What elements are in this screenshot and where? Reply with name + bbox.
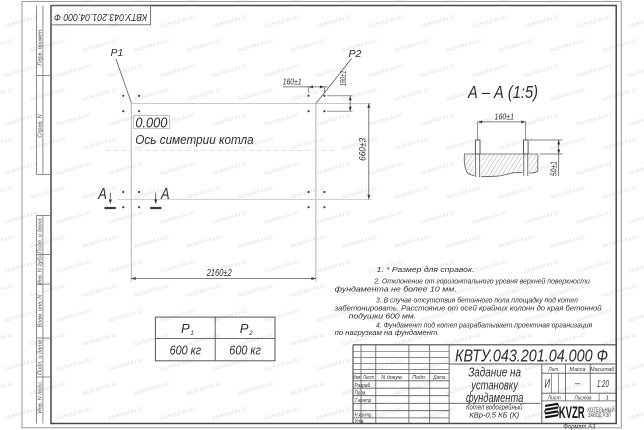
svg-text:Пров.: Пров. (355, 390, 367, 396)
svg-text:фундамента не более 10 мм.: фундамента не более 10 мм. (335, 284, 457, 293)
svg-text:660±3: 660±3 (357, 137, 368, 161)
svg-text:600 кг: 600 кг (170, 343, 202, 358)
svg-text:P2: P2 (349, 48, 362, 60)
svg-text:160±1: 160±1 (339, 71, 348, 87)
svg-text:ЗАВОД РЭП: ЗАВОД РЭП (588, 413, 611, 419)
svg-text:КВТУ.043.201.04.000 Ф: КВТУ.043.201.04.000 Ф (455, 346, 608, 366)
svg-text:P1: P1 (111, 47, 124, 59)
svg-text:Подп.: Подп. (412, 375, 426, 381)
svg-text:Инв. N подл.: Инв. N подл. (37, 381, 43, 414)
svg-text:Н.контр.: Н.контр. (355, 413, 373, 419)
svg-text:1: 1 (606, 396, 609, 402)
svg-text:Т.контр.: Т.контр. (355, 398, 373, 404)
svg-text:160±1: 160±1 (495, 112, 515, 121)
svg-text:Справ. N: Справ. N (37, 113, 43, 137)
svg-text:2: 2 (248, 330, 253, 337)
svg-text:Утв.: Утв. (354, 419, 365, 425)
svg-text:КВр-0,5 КБ (К): КВр-0,5 КБ (К) (469, 411, 519, 420)
svg-text:1: 1 (190, 330, 194, 337)
svg-text:–: – (574, 378, 581, 389)
svg-text:Дата: Дата (433, 375, 446, 381)
svg-text:0.000: 0.000 (135, 115, 167, 131)
svg-text:И: И (544, 377, 550, 391)
svg-text:Подп. и дата: Подп. и дата (37, 218, 43, 253)
svg-text:Взам. инв. N: Взам. инв. N (37, 294, 43, 328)
svg-text:1. * Размер для справок.: 1. * Размер для справок. (377, 265, 475, 274)
svg-text:по нагрузкам на фундамент.: по нагрузкам на фундамент. (335, 328, 440, 337)
svg-text:Изм.: Изм. (353, 375, 362, 381)
svg-text:50±1: 50±1 (550, 161, 559, 176)
svg-text:600 кг: 600 кг (229, 343, 261, 358)
svg-text:KVZR: KVZR (559, 403, 585, 422)
svg-text:Подп. и дата: Подп. и дата (37, 340, 43, 375)
svg-text:160±1: 160±1 (283, 78, 302, 87)
svg-text:Разраб.: Разраб. (355, 383, 372, 389)
svg-text:Ось симетрии котла: Ось симетрии котла (135, 132, 253, 147)
svg-text:КВТУ.043.201.04.000 Ф: КВТУ.043.201.04.000 Ф (54, 11, 147, 22)
svg-text:Задание на: Задание на (468, 365, 521, 379)
svg-text:А: А (160, 186, 169, 203)
svg-text:1:20: 1:20 (597, 379, 609, 390)
svg-text:Р: Р (181, 321, 190, 336)
svg-text:Масса: Масса (570, 367, 587, 373)
svg-text:Формат А3: Формат А3 (563, 423, 596, 430)
svg-text:Лист: Лист (362, 375, 374, 381)
svg-text:Листов: Листов (574, 396, 592, 402)
svg-text:Перв. примен.: Перв. примен. (37, 28, 43, 65)
svg-text:Р: Р (240, 321, 249, 336)
svg-text:Лит.: Лит. (548, 367, 560, 373)
svg-text:А: А (97, 186, 106, 203)
svg-text:N докум.: N докум. (381, 375, 403, 381)
svg-text:подушки 600 мм.: подушки 600 мм. (349, 311, 417, 320)
svg-text:Лист: Лист (547, 396, 561, 402)
svg-text:Инв. N дубл.: Инв. N дубл. (37, 253, 43, 285)
svg-text:2160±2: 2160±2 (206, 268, 232, 279)
svg-text:Масштаб: Масштаб (590, 367, 615, 373)
svg-text:А – А (1:5): А – А (1:5) (467, 82, 538, 102)
